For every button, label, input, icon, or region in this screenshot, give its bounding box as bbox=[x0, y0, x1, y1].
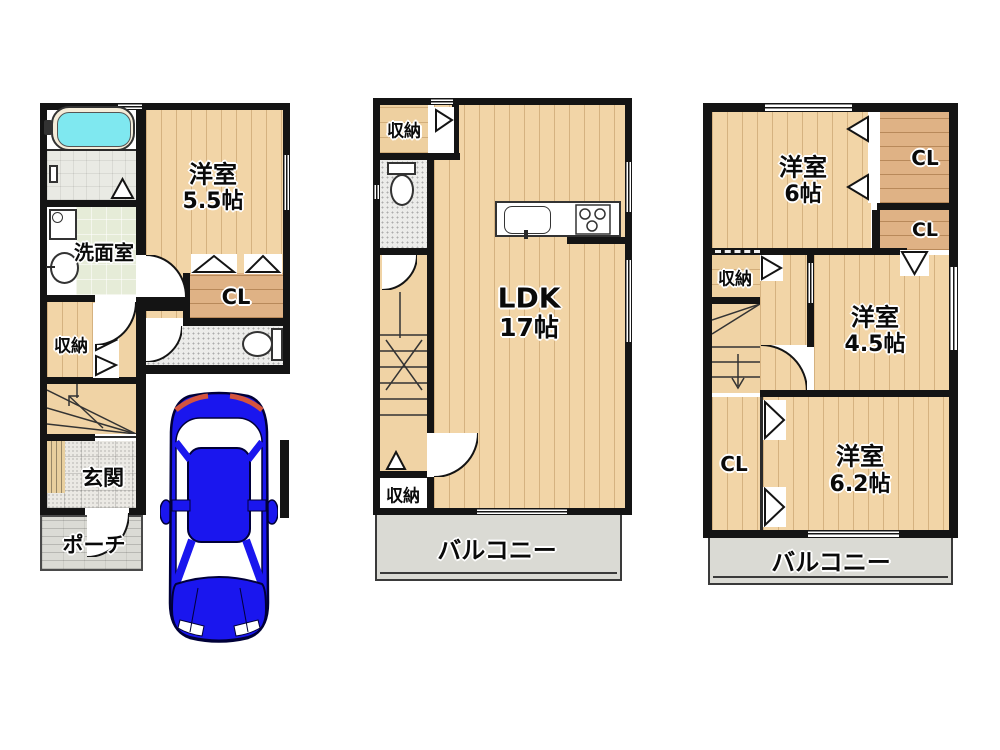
wall bbox=[567, 237, 625, 244]
storage-top-label: 収納 bbox=[387, 117, 421, 142]
balcony-rail-line bbox=[380, 572, 617, 574]
closet-door-mark bbox=[244, 254, 282, 274]
closet1-label: CL bbox=[911, 146, 938, 170]
window bbox=[625, 260, 632, 342]
wall bbox=[40, 377, 136, 384]
door-gap bbox=[95, 295, 136, 302]
wall bbox=[872, 210, 880, 250]
closet-label: CL bbox=[222, 285, 251, 309]
storage-bottom-label: 収納 bbox=[386, 482, 420, 507]
door-gap bbox=[427, 433, 434, 477]
storage-label: 収納 bbox=[718, 265, 752, 290]
ldk-size: 17帖 bbox=[499, 308, 559, 344]
entrance-label: 玄関 bbox=[82, 462, 124, 492]
wall bbox=[136, 103, 146, 515]
wall bbox=[760, 390, 949, 397]
closet-door-mark bbox=[900, 250, 929, 276]
door-gap bbox=[136, 255, 146, 297]
bedroom6-size: 6帖 bbox=[784, 176, 821, 208]
wall bbox=[283, 103, 290, 372]
stove bbox=[575, 204, 611, 235]
wall bbox=[373, 98, 380, 515]
wall bbox=[373, 98, 632, 105]
door-swing bbox=[95, 302, 136, 345]
toilet-bowl bbox=[242, 331, 273, 357]
stairs bbox=[380, 292, 427, 430]
wall bbox=[427, 477, 434, 515]
closet-door-mark bbox=[763, 487, 786, 527]
storage-door-mark bbox=[434, 107, 454, 153]
storage-door-mark bbox=[760, 255, 783, 281]
toilet-bowl bbox=[390, 174, 414, 206]
wall-dashed-opening bbox=[715, 250, 760, 253]
closet-door-mark bbox=[191, 254, 237, 274]
door-swing bbox=[146, 326, 182, 362]
door-swing bbox=[146, 255, 186, 297]
wall bbox=[47, 434, 95, 441]
wall bbox=[380, 248, 427, 255]
wall-slider bbox=[807, 263, 814, 303]
window bbox=[625, 162, 632, 212]
door-gap bbox=[807, 347, 814, 390]
washroom-label: 洗面室 bbox=[74, 237, 134, 266]
bedroom45-size: 4.5帖 bbox=[845, 326, 906, 358]
stairs bbox=[712, 304, 760, 393]
bath-partition bbox=[47, 149, 136, 151]
wall bbox=[703, 103, 712, 538]
window bbox=[431, 98, 453, 105]
window bbox=[765, 103, 852, 112]
bath-faucet bbox=[44, 120, 52, 135]
bedroom62-size: 6.2帖 bbox=[830, 466, 891, 498]
stairs bbox=[47, 384, 136, 434]
shower-fixture bbox=[49, 165, 58, 183]
car bbox=[160, 388, 278, 648]
wall bbox=[136, 365, 290, 374]
closet-door-mark bbox=[763, 400, 786, 440]
door-swing bbox=[382, 255, 417, 290]
floor-plan-canvas: 洋室 5.5帖 洗面室 CL 収納 玄関 ポーチ bbox=[0, 0, 1000, 750]
closet3-label: CL bbox=[720, 452, 747, 476]
porch-label: ポーチ bbox=[63, 529, 126, 559]
door-swing bbox=[434, 433, 478, 477]
door-gap bbox=[146, 318, 183, 326]
entrance-step-line bbox=[95, 436, 136, 438]
wall bbox=[380, 153, 460, 160]
storage-door-mark bbox=[385, 450, 407, 471]
window bbox=[949, 267, 958, 350]
bath-door-mark bbox=[110, 177, 135, 200]
wall bbox=[877, 203, 949, 210]
wall bbox=[710, 297, 760, 304]
balcony-label: バルコニー bbox=[437, 531, 557, 566]
window bbox=[283, 155, 290, 210]
balcony-window bbox=[477, 508, 567, 515]
kitchen-faucet bbox=[524, 230, 528, 239]
bedroom-size: 5.5帖 bbox=[183, 183, 244, 215]
balcony-window bbox=[808, 530, 899, 538]
floor2-plan: 収納 LDK 17帖 収納 バルコニー bbox=[373, 98, 633, 585]
boundary-wall bbox=[280, 440, 289, 518]
closet-door-mark bbox=[846, 115, 870, 143]
sink-faucet bbox=[46, 266, 55, 268]
wall bbox=[40, 200, 136, 207]
shoe-cabinet bbox=[47, 441, 65, 493]
washing-machine-dial bbox=[52, 212, 63, 223]
wall bbox=[183, 318, 290, 326]
door-swing bbox=[761, 345, 807, 391]
closet2-label: CL bbox=[912, 219, 938, 241]
closet-door-mark bbox=[846, 173, 870, 201]
wall bbox=[40, 103, 47, 515]
window bbox=[373, 185, 380, 199]
wall bbox=[378, 471, 430, 478]
storage-label: 収納 bbox=[54, 332, 88, 357]
bathtub-water bbox=[57, 112, 131, 147]
wall bbox=[427, 153, 434, 433]
floor3-plan: 洋室 6帖 CL CL 収納 洋室 4.5帖 CL 洋室 6.2帖 バルコニー bbox=[703, 103, 958, 585]
balcony-label: バルコニー bbox=[771, 543, 891, 578]
